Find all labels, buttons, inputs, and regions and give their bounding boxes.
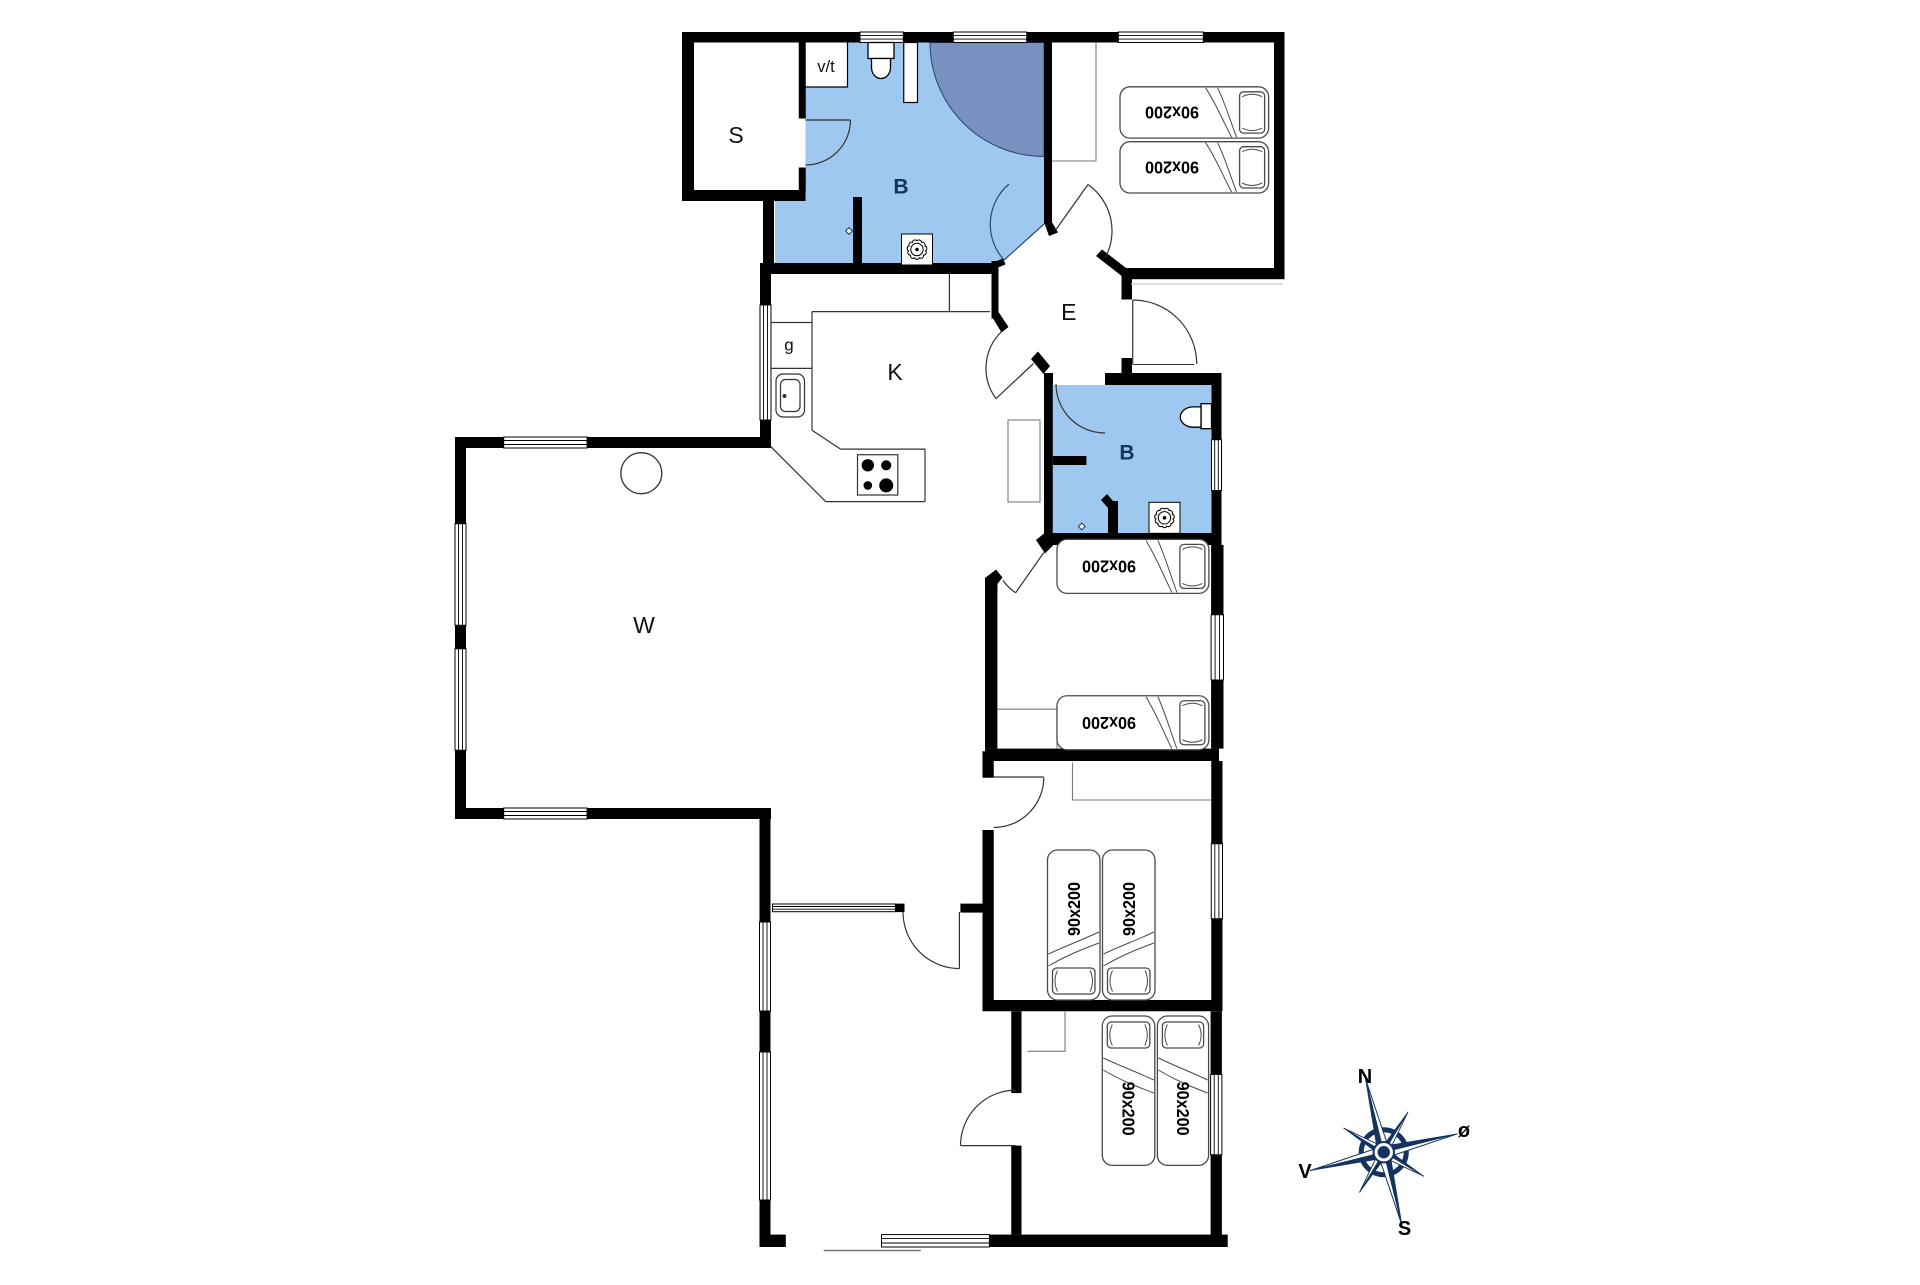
svg-text:90x200: 90x200 xyxy=(1145,102,1199,122)
svg-text:v/t: v/t xyxy=(817,58,835,76)
svg-text:90x200: 90x200 xyxy=(1145,157,1199,177)
svg-text:90x200: 90x200 xyxy=(1064,882,1084,936)
svg-text:W: W xyxy=(633,612,655,638)
svg-text:S: S xyxy=(728,122,743,148)
svg-text:K: K xyxy=(887,359,903,385)
svg-text:E: E xyxy=(1061,299,1076,325)
svg-text:S: S xyxy=(1398,1218,1411,1240)
svg-text:ø: ø xyxy=(1458,1120,1471,1142)
svg-text:N: N xyxy=(1358,1066,1372,1088)
svg-text:V: V xyxy=(1298,1161,1312,1183)
svg-text:90x200: 90x200 xyxy=(1082,713,1136,733)
svg-text:90x200: 90x200 xyxy=(1119,882,1139,936)
svg-text:B: B xyxy=(893,176,908,199)
svg-text:90x200: 90x200 xyxy=(1119,1082,1139,1136)
svg-text:g: g xyxy=(784,336,793,355)
svg-text:90x200: 90x200 xyxy=(1082,556,1136,576)
svg-text:B: B xyxy=(1119,442,1134,465)
svg-text:90x200: 90x200 xyxy=(1173,1082,1193,1136)
